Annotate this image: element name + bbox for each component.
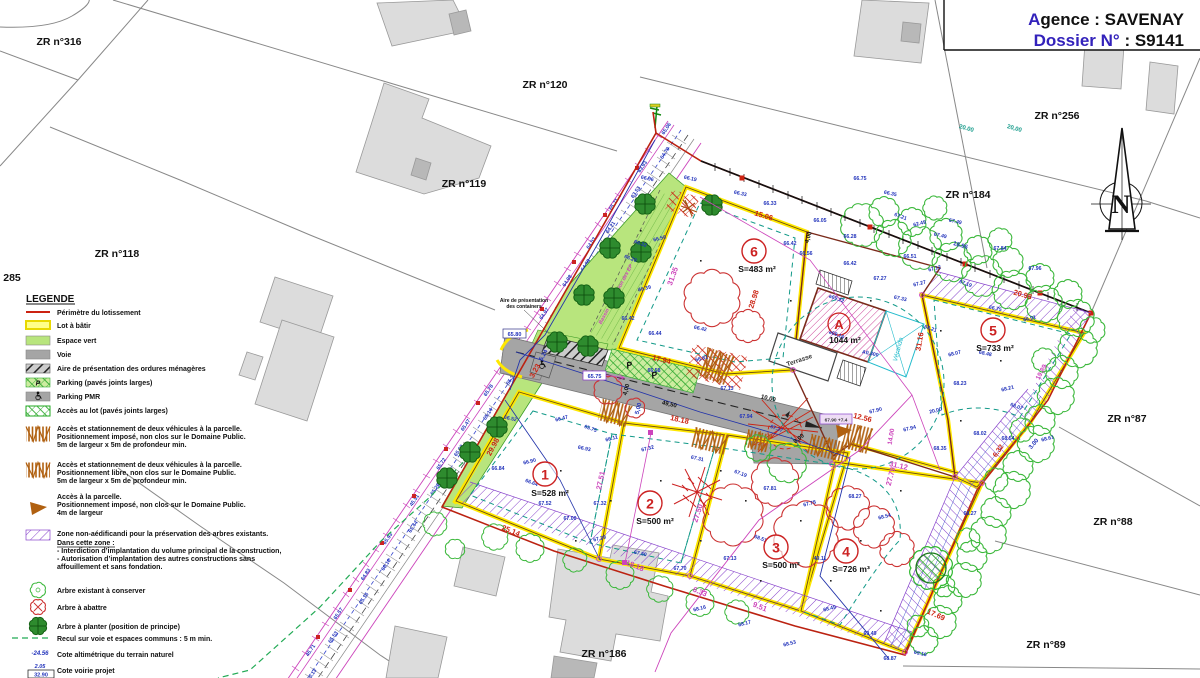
svg-text:ZR n°88: ZR n°88 xyxy=(1093,516,1132,528)
svg-text:66.56: 66.56 xyxy=(800,251,813,257)
svg-text:Périmètre du lotissement: Périmètre du lotissement xyxy=(57,310,141,317)
svg-text:66.16: 66.16 xyxy=(380,558,392,572)
svg-text:ZR n°87: ZR n°87 xyxy=(1107,413,1146,425)
svg-text:ZR n°118: ZR n°118 xyxy=(95,248,140,260)
svg-text:27.51: 27.51 xyxy=(594,470,607,490)
svg-text:S=726 m³: S=726 m³ xyxy=(832,564,870,574)
svg-text:66.33: 66.33 xyxy=(733,190,747,199)
svg-text:32.90: 32.90 xyxy=(34,673,48,678)
svg-text:ZR n°186: ZR n°186 xyxy=(581,648,626,660)
svg-text:67.19: 67.19 xyxy=(733,469,747,479)
svg-text:Dans cette zone :: Dans cette zone : xyxy=(57,540,115,547)
svg-text:Arbre à planter (position de p: Arbre à planter (position de principe) xyxy=(57,624,180,631)
svg-text:66.42: 66.42 xyxy=(693,325,707,334)
svg-text:69.16: 69.16 xyxy=(913,650,927,659)
svg-text:P: P xyxy=(36,381,41,388)
svg-text:5m de largeur x 5m de profonde: 5m de largeur x 5m de profondeur min. xyxy=(57,442,187,449)
svg-text:Arbre à abattre: Arbre à abattre xyxy=(57,605,107,612)
svg-text:28.98: 28.98 xyxy=(746,289,760,310)
svg-text:14.00: 14.00 xyxy=(887,428,897,446)
svg-text:68.23: 68.23 xyxy=(954,381,967,387)
svg-text:Recul sur voie et espaces comm: Recul sur voie et espaces communs : 5 m … xyxy=(57,636,212,643)
svg-text:Parking (pavés joints larges): Parking (pavés joints larges) xyxy=(57,380,152,387)
svg-text:Véranda: Véranda xyxy=(892,336,905,362)
svg-text:3: 3 xyxy=(772,540,780,556)
svg-text:S=528 m²: S=528 m² xyxy=(531,488,569,498)
svg-text:66.90: 66.90 xyxy=(523,457,537,466)
svg-text:Cote voirie projet: Cote voirie projet xyxy=(57,668,115,675)
svg-text:31.16: 31.16 xyxy=(913,332,925,352)
svg-text:64.79: 64.79 xyxy=(659,146,671,160)
svg-text:66.58: 66.58 xyxy=(648,368,661,374)
svg-text:Aire de présentation des ordur: Aire de présentation des ordures ménagèr… xyxy=(57,366,206,373)
svg-text:ZR n°119: ZR n°119 xyxy=(442,178,487,190)
svg-text:Cote altimétrique du terrain n: Cote altimétrique du terrain naturel xyxy=(57,652,174,659)
svg-text:5m de largeur x 5m de profonde: 5m de largeur x 5m de profondeur min. xyxy=(57,478,187,485)
svg-text:des containers: des containers xyxy=(506,304,542,310)
svg-text:65.80: 65.80 xyxy=(508,332,522,338)
svg-text:67.90 +7.4: 67.90 +7.4 xyxy=(825,418,848,424)
svg-text:Accès et stationnement de deux: Accès et stationnement de deux véhicules… xyxy=(57,426,242,433)
svg-text:68.02: 68.02 xyxy=(974,431,987,437)
svg-text:68.27: 68.27 xyxy=(849,494,862,500)
svg-text:4: 4 xyxy=(842,544,850,560)
svg-text:66.51: 66.51 xyxy=(904,254,917,260)
svg-text:66.42: 66.42 xyxy=(622,316,635,322)
svg-text:Lot à bâtir: Lot à bâtir xyxy=(57,323,91,330)
svg-text:Accès et stationnement de deux: Accès et stationnement de deux véhicules… xyxy=(57,462,242,469)
svg-text:67.81: 67.81 xyxy=(764,486,777,492)
svg-text:66.96: 66.96 xyxy=(640,175,654,184)
svg-text:66.19: 66.19 xyxy=(683,175,697,184)
svg-text:68.54: 68.54 xyxy=(878,512,892,521)
svg-text:S=500 m²: S=500 m² xyxy=(636,516,674,526)
svg-text:65.44: 65.44 xyxy=(407,520,419,534)
svg-text:67.52: 67.52 xyxy=(539,501,552,507)
svg-text:67.94: 67.94 xyxy=(903,424,917,433)
svg-text:67.49: 67.49 xyxy=(933,232,947,241)
svg-text:S=483 m²: S=483 m² xyxy=(738,264,776,274)
svg-text:67.90: 67.90 xyxy=(869,406,883,415)
svg-text:15.06: 15.06 xyxy=(753,209,774,223)
svg-text:68.16: 68.16 xyxy=(693,604,707,613)
svg-text:66.33: 66.33 xyxy=(764,201,777,207)
svg-text:2.05: 2.05 xyxy=(34,664,47,670)
svg-text:Accès à la parcelle.: Accès à la parcelle. xyxy=(57,494,122,501)
svg-text:67.27: 67.27 xyxy=(913,279,927,288)
svg-text:Parking PMR: Parking PMR xyxy=(57,394,100,401)
svg-text:68.54: 68.54 xyxy=(1002,436,1015,442)
svg-text:ZR n°256: ZR n°256 xyxy=(1034,110,1079,122)
svg-text:- Autorisation d’implantation: - Autorisation d’implantation des autres… xyxy=(57,556,255,563)
svg-text:68.27: 68.27 xyxy=(964,511,977,517)
svg-text:66.47: 66.47 xyxy=(555,414,569,423)
svg-text:20,00: 20,00 xyxy=(929,406,943,415)
svg-text:A: A xyxy=(834,317,844,332)
svg-text:6.33: 6.33 xyxy=(691,585,708,599)
svg-text:67.32: 67.32 xyxy=(641,444,655,453)
svg-text:Dossier N° : S9141: Dossier N° : S9141 xyxy=(1034,31,1184,50)
svg-text:66.44: 66.44 xyxy=(649,331,662,337)
svg-text:67.27: 67.27 xyxy=(874,276,887,282)
svg-text:5: 5 xyxy=(989,323,997,339)
svg-text:Positionnement imposé, non clo: Positionnement imposé, non clos sur le D… xyxy=(57,434,246,441)
svg-text:66.28: 66.28 xyxy=(844,234,857,240)
svg-text:67.49: 67.49 xyxy=(948,218,962,227)
svg-text:65.13: 65.13 xyxy=(306,668,318,678)
svg-text:68.87: 68.87 xyxy=(884,656,897,662)
svg-text:66.05: 66.05 xyxy=(814,218,827,224)
svg-text:20,00: 20,00 xyxy=(1006,124,1023,134)
svg-text:Positionnement imposé, non clo: Positionnement imposé, non clos sur le D… xyxy=(57,502,246,509)
svg-text:ZR n°120: ZR n°120 xyxy=(522,79,567,91)
svg-text:Arbre existant à conserver: Arbre existant à conserver xyxy=(57,588,146,595)
svg-text:49.11: 49.11 xyxy=(814,556,827,562)
svg-text:67.00: 67.00 xyxy=(564,516,577,522)
svg-text:N: N xyxy=(1112,190,1131,219)
svg-text:68.17: 68.17 xyxy=(738,619,752,628)
svg-text:67.96: 67.96 xyxy=(1029,266,1042,272)
svg-text:65.75: 65.75 xyxy=(583,424,597,434)
svg-text:67.13: 67.13 xyxy=(724,556,737,562)
svg-text:ZR n°89: ZR n°89 xyxy=(1026,639,1065,651)
svg-text:65.47: 65.47 xyxy=(460,418,472,432)
svg-text:68.61: 68.61 xyxy=(1041,434,1055,443)
svg-text:69.49: 69.49 xyxy=(864,631,877,637)
svg-text:- Interdiction d’implantation: - Interdiction d’implantation du volume … xyxy=(57,548,281,555)
svg-text:66.93: 66.93 xyxy=(577,445,591,454)
svg-text:Voie: Voie xyxy=(57,352,71,359)
svg-text:67.70: 67.70 xyxy=(674,566,687,572)
svg-text:68.07: 68.07 xyxy=(948,349,962,358)
svg-text:67.13: 67.13 xyxy=(721,386,734,392)
svg-text:66.42: 66.42 xyxy=(784,241,797,247)
svg-text:Positionnement libre, non clos: Positionnement libre, non clos sur le Do… xyxy=(57,470,236,477)
svg-text:S=500 m²: S=500 m² xyxy=(762,560,800,570)
svg-text:67.33: 67.33 xyxy=(893,295,907,304)
svg-text:S=733 m²: S=733 m² xyxy=(976,343,1014,353)
svg-text:1: 1 xyxy=(541,467,549,483)
svg-text:66.11: 66.11 xyxy=(605,434,619,443)
svg-text:Agence : SAVENAY: Agence : SAVENAY xyxy=(1028,10,1185,29)
svg-text:Accès au lot (pavés joints lar: Accès au lot (pavés joints larges) xyxy=(57,408,168,415)
svg-text:affouillement et sans fondatio: affouillement et sans fondation. xyxy=(57,564,162,571)
svg-text:Espace vert: Espace vert xyxy=(57,338,97,345)
svg-text:LEGENDE: LEGENDE xyxy=(26,294,75,305)
svg-text:31.35: 31.35 xyxy=(665,266,680,287)
svg-text:68.21: 68.21 xyxy=(1001,384,1015,393)
svg-text:67.32: 67.32 xyxy=(594,501,607,507)
svg-text:67.94: 67.94 xyxy=(740,414,753,420)
svg-text:67.84: 67.84 xyxy=(994,246,1007,252)
svg-text:ZR n°316: ZR n°316 xyxy=(36,36,81,48)
svg-text:66.84: 66.84 xyxy=(492,466,505,472)
svg-text:67.31: 67.31 xyxy=(690,455,704,464)
svg-text:285: 285 xyxy=(3,272,21,284)
svg-text:66.42: 66.42 xyxy=(844,261,857,267)
svg-text:ZR n°184: ZR n°184 xyxy=(945,189,990,201)
svg-text:68.35: 68.35 xyxy=(934,446,947,452)
svg-text:2: 2 xyxy=(646,496,654,512)
svg-text:17.69: 17.69 xyxy=(926,607,947,623)
svg-text:Zone non-aédificandi pour la p: Zone non-aédificandi pour la préservatio… xyxy=(57,531,268,538)
svg-text:-24.56: -24.56 xyxy=(31,651,49,657)
svg-text:68.53: 68.53 xyxy=(783,639,797,648)
svg-text:6: 6 xyxy=(750,244,758,260)
svg-text:65.57: 65.57 xyxy=(333,607,345,621)
svg-text:65.75: 65.75 xyxy=(588,374,602,380)
svg-text:4m de largeur: 4m de largeur xyxy=(57,510,103,517)
svg-text:66.75: 66.75 xyxy=(854,176,867,182)
